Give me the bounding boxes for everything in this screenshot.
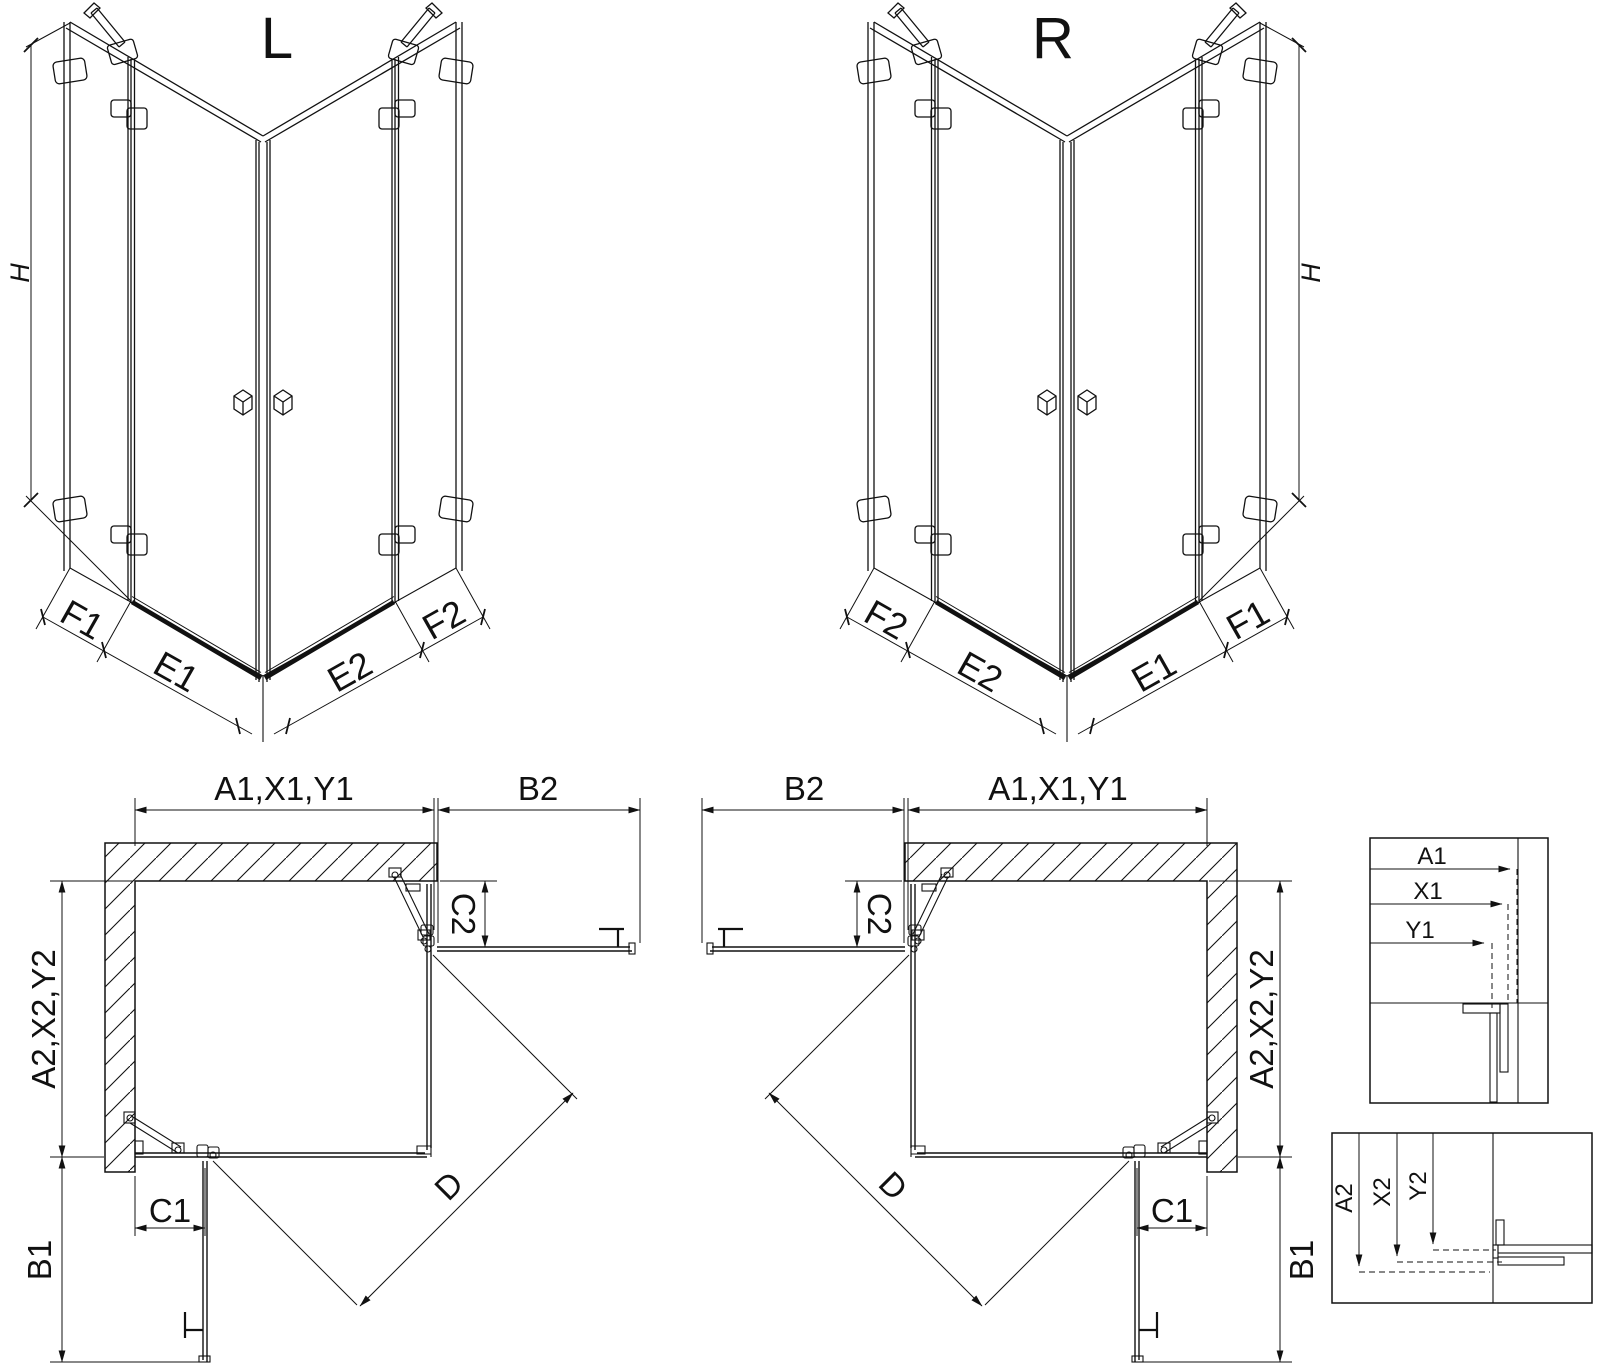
label-h-left: H (5, 263, 35, 283)
label-a1-right-plan: A1,X1,Y1 (988, 770, 1127, 807)
label-c2-right-plan: C2 (861, 893, 898, 935)
label-b1-left-plan: B1 (21, 1240, 58, 1280)
page-background (0, 0, 1600, 1372)
label-detail-y1: Y1 (1405, 917, 1434, 944)
label-a1-left-plan: A1,X1,Y1 (214, 770, 353, 807)
label-detail-a2: A2 (1331, 1183, 1358, 1212)
label-a2-left-plan: A2,X2,Y2 (25, 949, 62, 1088)
label-detail-x1: X1 (1413, 878, 1442, 905)
label-c1-left-plan: C1 (149, 1192, 191, 1229)
technical-drawing-page: L R H F1 E1 E2 F2 H F2 E2 E1 F1 A1,X1,Y1… (0, 0, 1600, 1372)
label-a2-right-plan: A2,X2,Y2 (1243, 949, 1280, 1088)
title-left-view: L (261, 6, 293, 71)
label-b2-right-plan: B2 (784, 770, 824, 807)
shower-enclosure-diagram: L R H F1 E1 E2 F2 H F2 E2 E1 F1 A1,X1,Y1… (0, 0, 1600, 1372)
title-right-view: R (1032, 6, 1074, 71)
label-detail-x2: X2 (1369, 1177, 1396, 1206)
label-detail-y2: Y2 (1405, 1171, 1432, 1200)
label-h-right: H (1296, 263, 1326, 283)
label-detail-a1: A1 (1417, 843, 1446, 870)
label-b1-right-plan: B1 (1283, 1240, 1320, 1280)
label-c2-left-plan: C2 (445, 893, 482, 935)
label-c1-right-plan: C1 (1151, 1192, 1193, 1229)
label-b2-left-plan: B2 (518, 770, 558, 807)
